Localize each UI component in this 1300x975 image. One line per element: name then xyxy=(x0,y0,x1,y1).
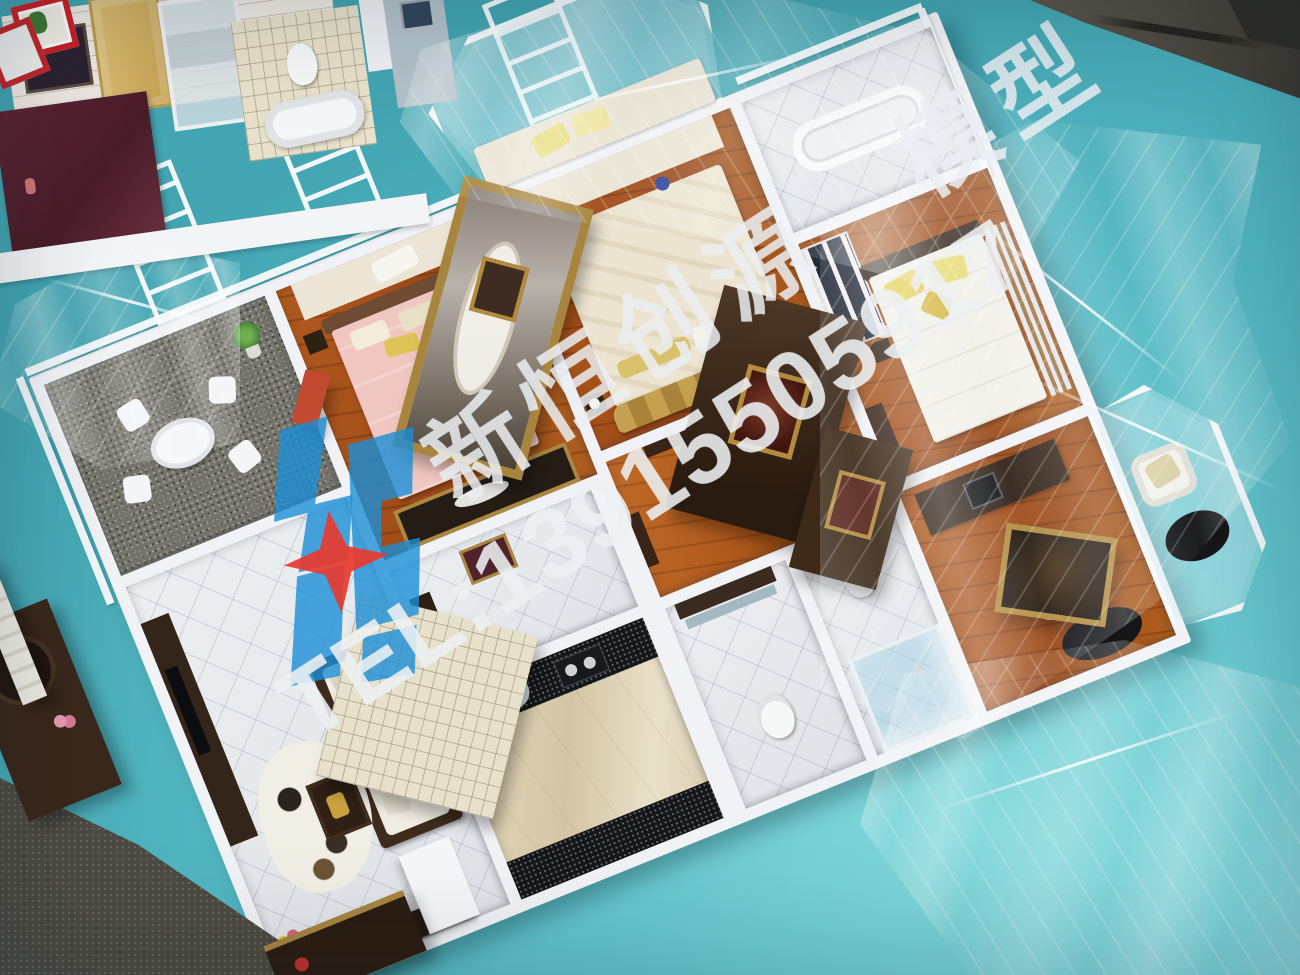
patio-chair xyxy=(208,376,236,404)
patio-chair xyxy=(122,474,152,504)
photo-miniature-apartment-model: 新恒创源 模型 TEL:13915505917 xyxy=(0,0,1300,975)
toilet xyxy=(752,688,801,743)
shower-enclosure xyxy=(847,623,975,752)
stove xyxy=(553,644,610,689)
pink-flowers xyxy=(48,705,79,736)
wall-art-gold-frame xyxy=(824,470,886,540)
figurine xyxy=(24,178,36,195)
burner xyxy=(563,662,579,678)
patio-chair xyxy=(115,397,152,434)
kitchen-counter-2 xyxy=(506,781,723,900)
red-decor-dot xyxy=(293,955,311,973)
patio-table xyxy=(143,409,222,478)
wall-niche xyxy=(399,0,432,29)
study-gold-painting xyxy=(994,523,1117,628)
burner xyxy=(582,655,598,671)
